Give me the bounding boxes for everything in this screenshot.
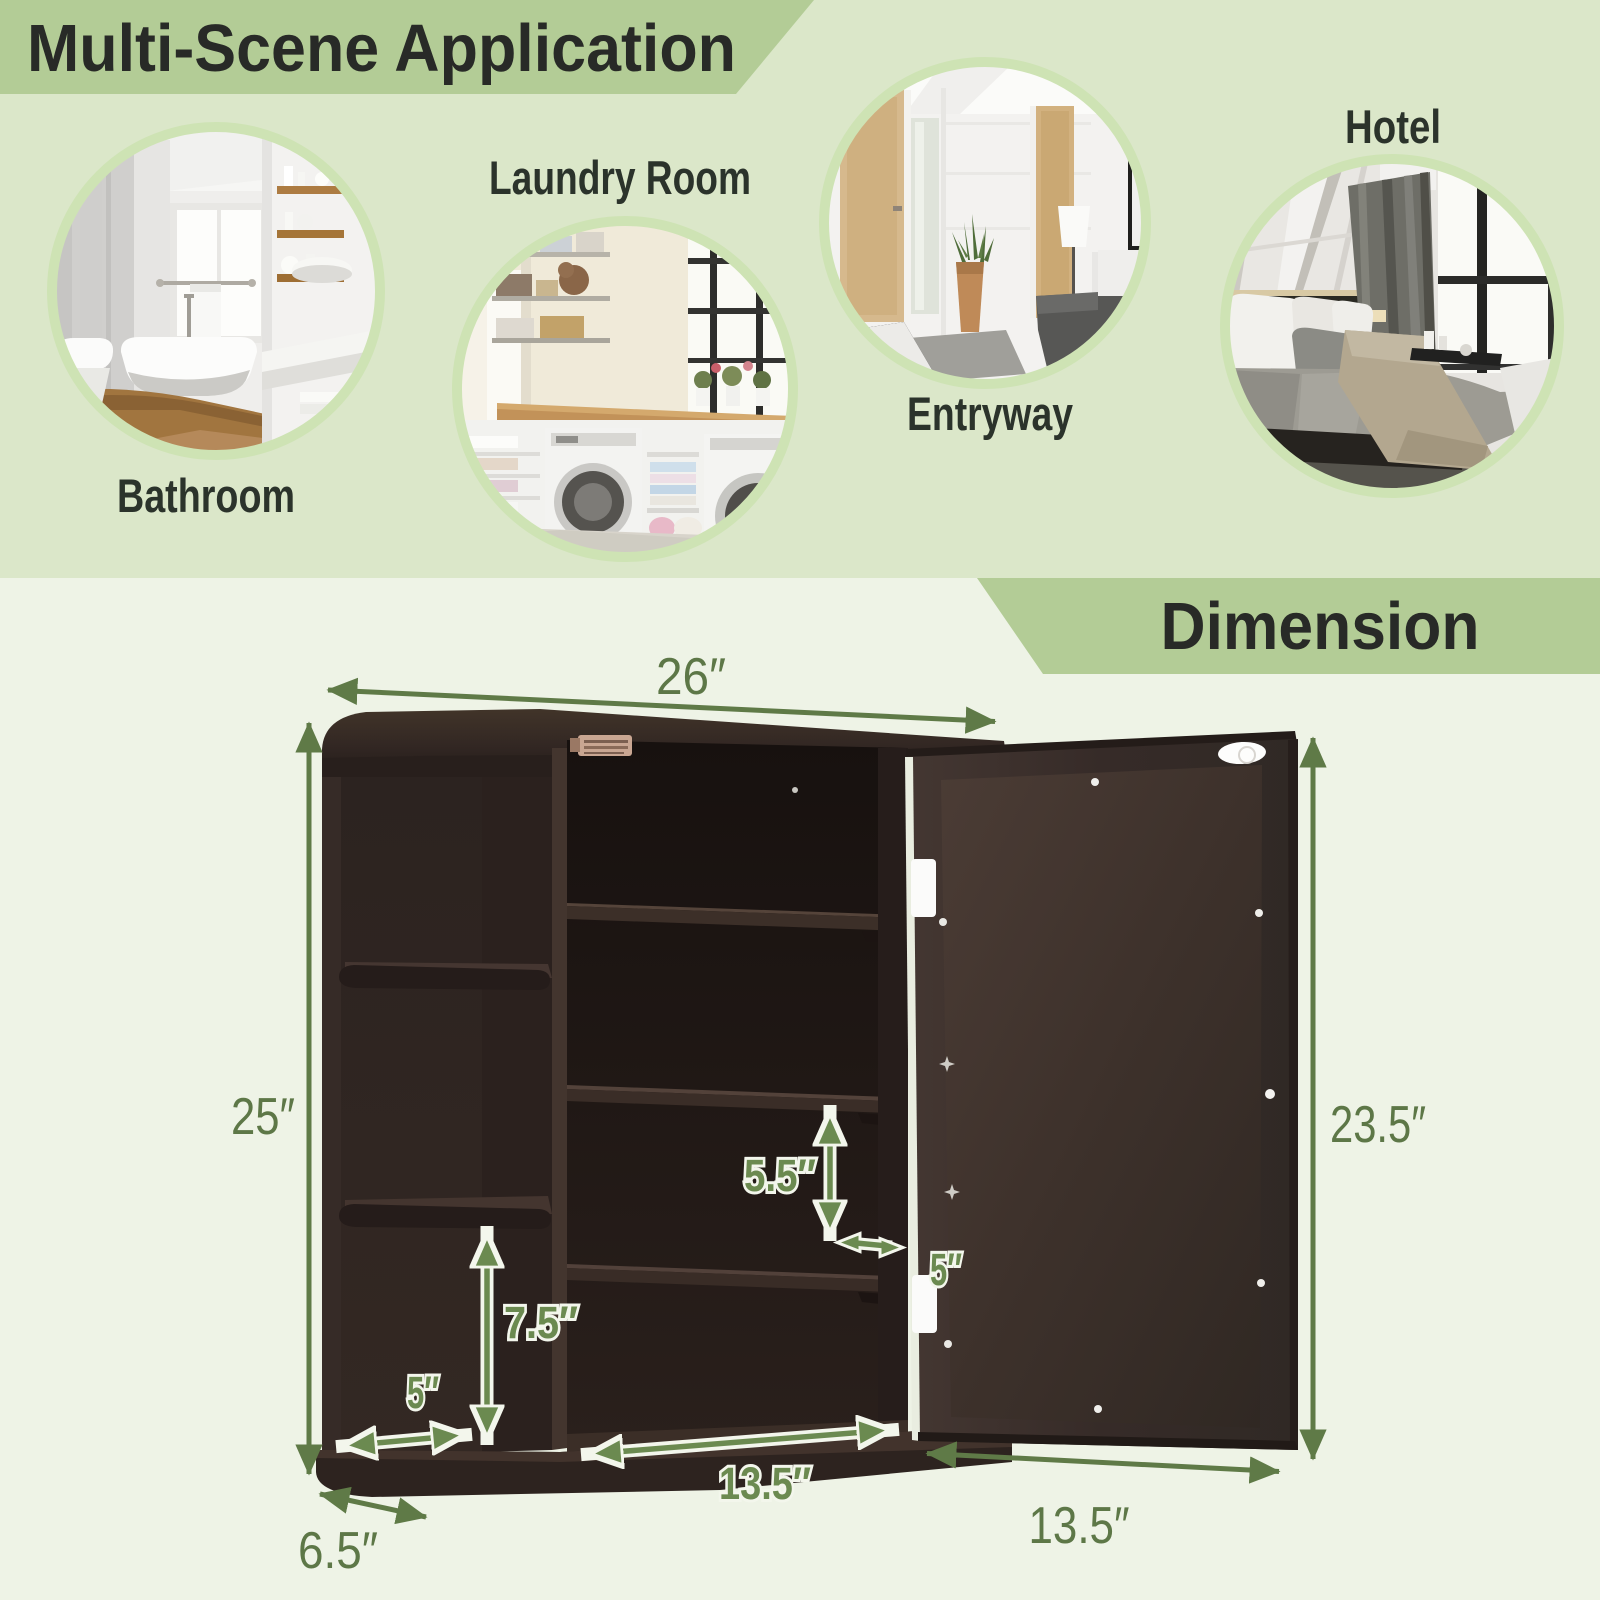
svg-text:13.5″: 13.5″ [719, 1458, 811, 1509]
svg-text:5″: 5″ [407, 1367, 439, 1418]
svg-text:26″: 26″ [656, 648, 726, 706]
svg-text:Multi-Scene Application: Multi-Scene Application [27, 11, 736, 86]
svg-text:Hotel: Hotel [1345, 100, 1441, 153]
svg-text:13.5″: 13.5″ [1029, 1497, 1130, 1555]
svg-text:6.5″: 6.5″ [298, 1522, 378, 1580]
svg-text:Laundry Room: Laundry Room [489, 151, 751, 204]
svg-text:25″: 25″ [231, 1088, 295, 1146]
svg-text:7.5″: 7.5″ [504, 1297, 578, 1348]
svg-text:23.5″: 23.5″ [1330, 1096, 1426, 1154]
svg-text:Entryway: Entryway [907, 387, 1073, 440]
svg-text:5.5″: 5.5″ [744, 1150, 816, 1201]
svg-text:Bathroom: Bathroom [117, 469, 295, 522]
svg-text:Dimension: Dimension [1161, 589, 1480, 664]
svg-text:5″: 5″ [930, 1244, 962, 1295]
